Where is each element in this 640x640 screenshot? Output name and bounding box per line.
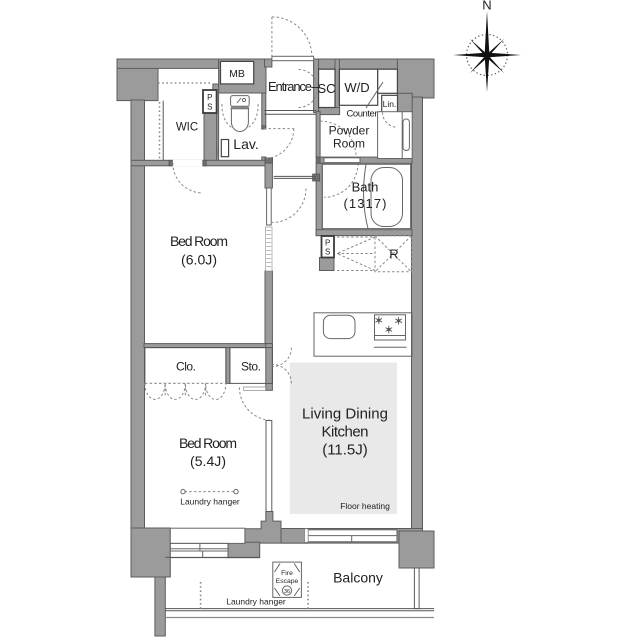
svg-text:Laundry hanger: Laundry hanger (180, 497, 240, 507)
svg-text:WIC: WIC (176, 122, 198, 134)
svg-text:36: 36 (284, 589, 290, 595)
svg-text:Entrance: Entrance (268, 79, 312, 94)
svg-text:Bed Room: Bed Room (170, 233, 228, 249)
svg-text:Bath: Bath (352, 180, 379, 195)
svg-text:Fire: Fire (281, 570, 293, 577)
svg-text:Escape: Escape (276, 578, 299, 585)
svg-text:Floor heating: Floor heating (340, 501, 390, 511)
svg-text:SC: SC (317, 81, 335, 96)
svg-text:(1317): (1317) (344, 196, 387, 211)
svg-text:Bed Room: Bed Room (179, 435, 237, 451)
svg-text:Counter: Counter (347, 109, 378, 120)
svg-text:P: P (207, 93, 212, 102)
svg-text:Powder: Powder (329, 124, 370, 138)
svg-text:S: S (207, 102, 212, 111)
svg-text:Room: Room (333, 137, 365, 151)
svg-text:Laundry hanger: Laundry hanger (226, 597, 286, 607)
svg-text:S: S (325, 247, 330, 256)
svg-text:Living Dining: Living Dining (302, 406, 388, 423)
svg-text:Lav.: Lav. (233, 136, 258, 152)
svg-text:Kitchen: Kitchen (322, 424, 369, 441)
svg-text:Clo.: Clo. (176, 360, 196, 374)
svg-text:Balcony: Balcony (333, 570, 383, 586)
svg-text:(6.0J): (6.0J) (181, 252, 217, 268)
svg-text:N: N (482, 0, 491, 13)
svg-text:R: R (389, 247, 398, 262)
svg-text:MB: MB (229, 68, 245, 80)
svg-text:W/D: W/D (344, 80, 369, 95)
svg-text:Lin.: Lin. (383, 99, 397, 109)
svg-text:(11.5J): (11.5J) (322, 442, 368, 459)
svg-text:P: P (325, 238, 330, 247)
svg-text:(5.4J): (5.4J) (190, 453, 226, 469)
svg-text:Sto.: Sto. (241, 360, 261, 374)
